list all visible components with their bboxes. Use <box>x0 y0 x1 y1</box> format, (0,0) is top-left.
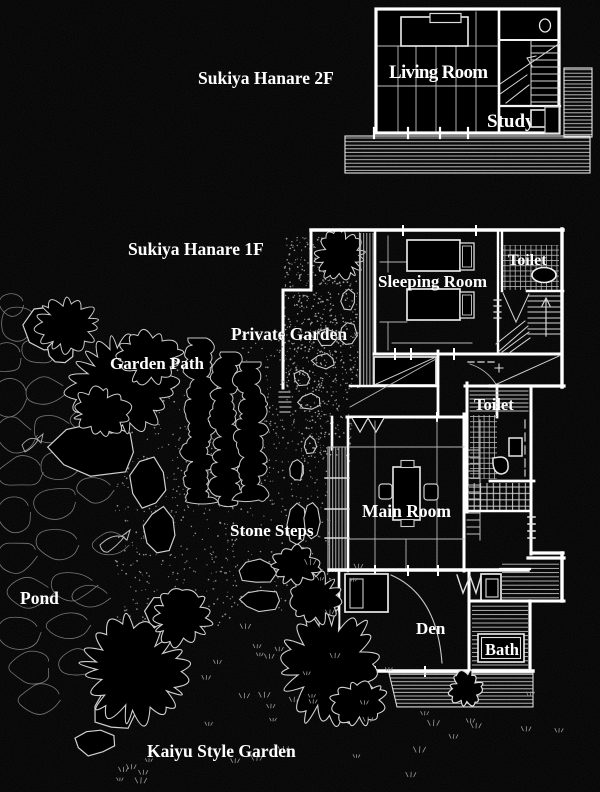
svg-text:Sukiya Hanare 1F: Sukiya Hanare 1F <box>128 239 264 259</box>
svg-text:Stone Steps: Stone Steps <box>230 521 314 540</box>
svg-text:Sleeping Room: Sleeping Room <box>378 272 487 291</box>
svg-text:Garden Path: Garden Path <box>110 354 205 373</box>
svg-text:Sukiya Hanare 2F: Sukiya Hanare 2F <box>198 68 334 88</box>
svg-text:Kaiyu Style Garden: Kaiyu Style Garden <box>147 741 296 761</box>
svg-text:Bath: Bath <box>485 640 519 659</box>
svg-text:Main Room: Main Room <box>362 501 451 521</box>
svg-text:Pond: Pond <box>20 588 59 608</box>
svg-text:Study: Study <box>487 111 535 132</box>
svg-text:Living Room: Living Room <box>389 62 488 83</box>
svg-text:Toilet: Toilet <box>508 252 547 269</box>
svg-text:Den: Den <box>416 619 446 638</box>
svg-text:Private Garden: Private Garden <box>231 324 347 344</box>
svg-text:Toilet: Toilet <box>474 395 514 414</box>
